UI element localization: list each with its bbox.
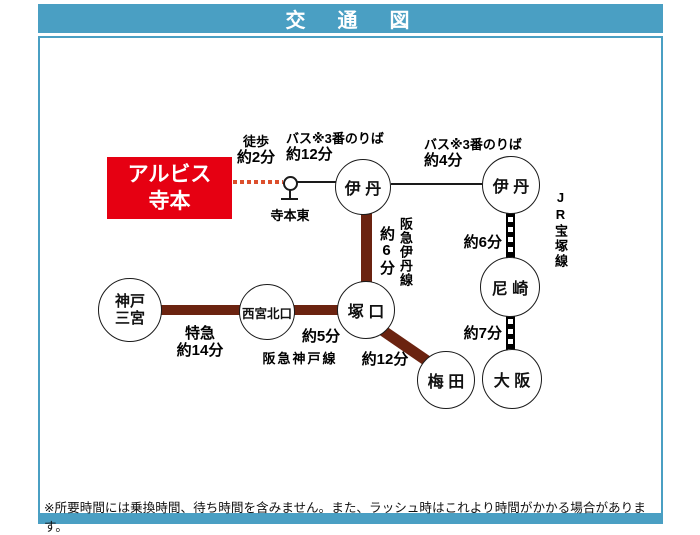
- jr-takarazuka-line-name: JR宝塚線: [551, 190, 570, 290]
- walk-dotted-path: [233, 180, 283, 184]
- tsukaguchi-umeda-time: 約12分: [355, 348, 415, 369]
- hankyu-itami-line-name: 阪急伊丹線: [396, 217, 415, 312]
- page-title: 交 通 図: [38, 4, 663, 33]
- station-amagasaki: 尼 崎: [480, 257, 540, 317]
- station-itami-hankyu: 伊 丹: [335, 159, 391, 215]
- bus2-time: 約4分: [424, 152, 522, 169]
- jr-itami-amagasaki-time: 約6分: [450, 231, 502, 252]
- bus-route-line-itami-itamijr: [391, 183, 482, 185]
- hankyu-itami-time: 約6分: [376, 226, 397, 280]
- kobe-sannomiya-line1: 神戸: [115, 293, 145, 310]
- jr-amagasaki-osaka-time: 約7分: [450, 322, 502, 343]
- bus-route-line-teramoto-itami: [296, 181, 336, 183]
- walk-label-line2: 約2分: [228, 149, 284, 166]
- nishikita-tsukaguchi-time: 約5分: [295, 325, 347, 346]
- walk-time-label: 徒歩 約2分: [228, 135, 284, 166]
- bus-stop-name: 寺本東: [262, 205, 318, 224]
- jr-line-itami-amagasaki-segment: [506, 212, 515, 260]
- walk-label-line1: 徒歩: [228, 135, 284, 149]
- station-osaka: 大 阪: [482, 349, 542, 409]
- station-nishinomiya-kitaguchi: 西宮北口: [239, 284, 295, 340]
- hankyu-kobe-line-name: 阪急神戸線: [252, 348, 348, 367]
- bus-route-2-label: バス※3番のりば 約4分: [424, 137, 522, 169]
- bus-route-1-label: バス※3番のりば 約12分: [286, 131, 384, 163]
- bus2-platform: バス※3番のりば: [424, 137, 522, 152]
- express-time-label: 特急 約14分: [166, 325, 234, 359]
- kobe-sannomiya-line2: 三宮: [115, 310, 145, 327]
- origin-store-box: アルビス 寺本: [107, 157, 232, 219]
- bus1-platform: バス※3番のりば: [286, 131, 384, 146]
- bus-stop-icon-base: [281, 198, 298, 200]
- express-label-line2: 約14分: [166, 342, 234, 359]
- origin-store-name-line2: 寺本: [149, 188, 191, 215]
- station-umeda: 梅 田: [417, 351, 475, 409]
- jr-line-amagasaki-osaka-segment: [506, 314, 515, 352]
- footer-note: ※所要時間には乗換時間、待ち時間を含みません。また、ラッシュ時はこれより時間がか…: [44, 497, 658, 535]
- bus1-time: 約12分: [286, 146, 384, 163]
- origin-store-name-line1: アルビス: [128, 161, 212, 188]
- express-label-line1: 特急: [166, 325, 234, 342]
- station-kobe-sannomiya: 神戸 三宮: [98, 278, 162, 342]
- hankyu-itami-line-segment: [361, 212, 372, 285]
